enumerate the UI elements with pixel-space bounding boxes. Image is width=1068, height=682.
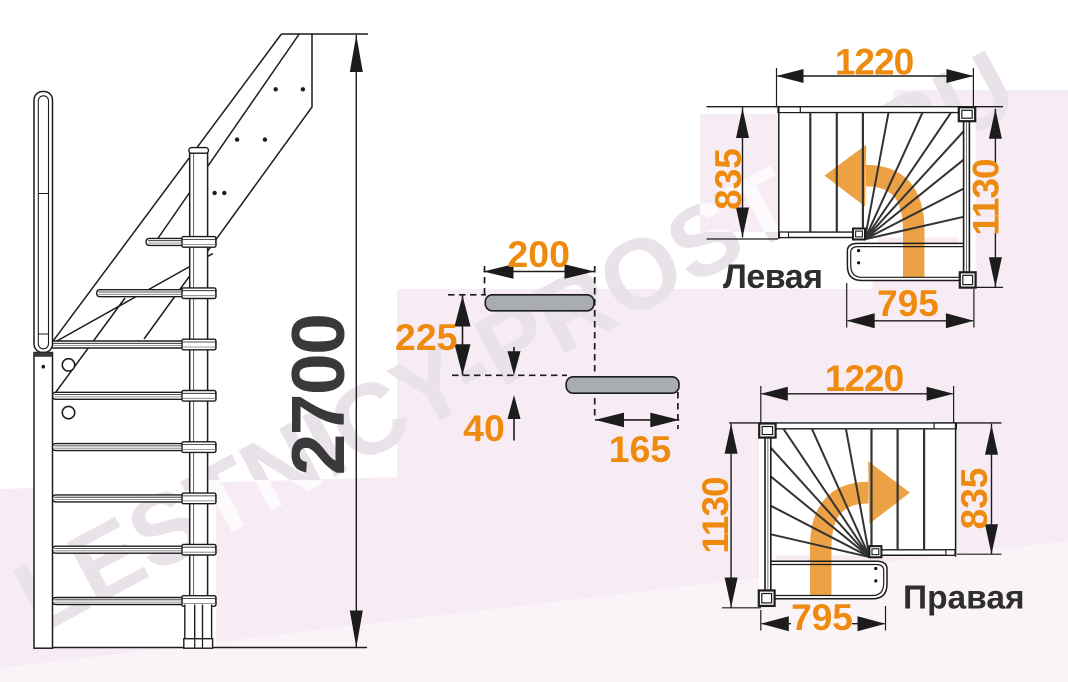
svg-text:835: 835 — [954, 468, 995, 530]
svg-text:Левая: Левая — [723, 258, 822, 296]
svg-text:200: 200 — [507, 233, 570, 275]
svg-text:40: 40 — [463, 407, 505, 449]
svg-text:835: 835 — [708, 148, 749, 210]
svg-text:2700: 2700 — [276, 315, 360, 476]
svg-text:795: 795 — [791, 597, 853, 638]
svg-text:1130: 1130 — [695, 477, 736, 554]
svg-text:1220: 1220 — [825, 358, 904, 399]
svg-text:1130: 1130 — [966, 159, 1007, 236]
svg-text:225: 225 — [395, 316, 458, 358]
svg-text:1220: 1220 — [835, 42, 914, 83]
svg-text:795: 795 — [877, 283, 939, 324]
svg-text:165: 165 — [609, 428, 672, 470]
svg-text:Правая: Правая — [903, 580, 1025, 617]
